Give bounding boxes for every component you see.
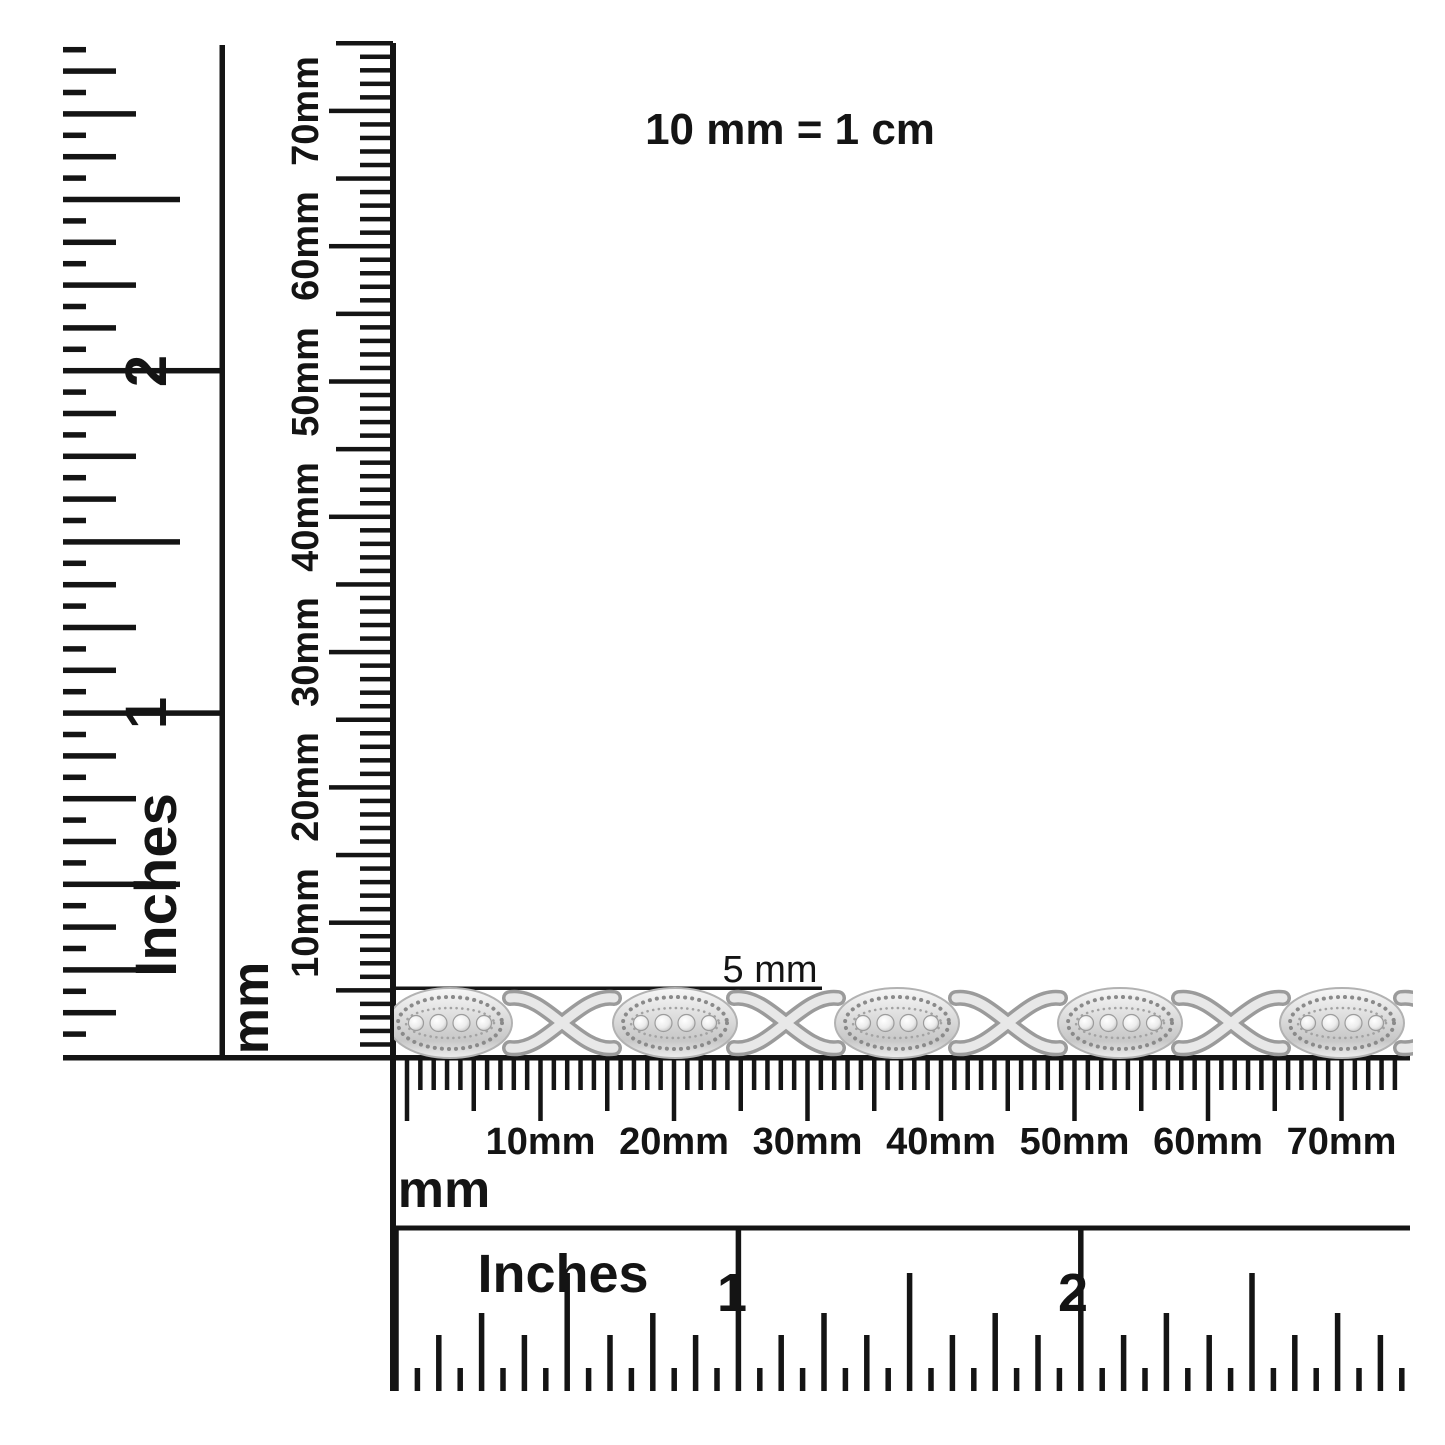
mm-tick-label-vertical-10mm: 10mm <box>287 868 325 978</box>
mm-tick-label-horizontal-60mm: 60mm <box>1153 1123 1263 1161</box>
mm-tick-label-horizontal-40mm: 40mm <box>886 1123 996 1161</box>
mm-tick-label-vertical-20mm: 20mm <box>287 732 325 842</box>
ruler-and-bracelet-graphic <box>0 0 1445 1445</box>
horizontal-inch-numeral-2: 2 <box>1058 1266 1088 1320</box>
vertical-inch-numeral-1: 1 <box>118 697 176 729</box>
mm-tick-label-horizontal-30mm: 30mm <box>753 1123 863 1161</box>
horizontal-mm-unit-label: mm <box>398 1164 490 1216</box>
horizontal-inch-numeral-1: 1 <box>717 1266 747 1320</box>
mm-tick-label-vertical-50mm: 50mm <box>287 327 325 437</box>
mm-tick-label-vertical-40mm: 40mm <box>287 462 325 572</box>
ruler-ticks-and-lines <box>63 41 1410 1391</box>
scale-note: 10 mm = 1 cm <box>645 108 935 152</box>
mm-tick-label-horizontal-20mm: 20mm <box>619 1123 729 1161</box>
mm-tick-label-horizontal-70mm: 70mm <box>1287 1123 1397 1161</box>
mm-tick-label-horizontal-10mm: 10mm <box>486 1123 596 1161</box>
bracelet-measurement-diagram: 10 mm = 1 cm 5 mm 2 1 Inches mm mm Inche… <box>0 0 1445 1445</box>
mm-tick-label-horizontal-50mm: 50mm <box>1020 1123 1130 1161</box>
bracelet-width-label: 5 mm <box>723 951 818 989</box>
horizontal-inch-unit-label: Inches <box>477 1247 648 1301</box>
mm-tick-label-vertical-70mm: 70mm <box>287 56 325 166</box>
vertical-inch-unit-label: Inches <box>128 793 186 977</box>
vertical-inch-numeral-2: 2 <box>118 355 176 387</box>
vertical-mm-unit-label: mm <box>225 962 277 1054</box>
mm-tick-label-vertical-30mm: 30mm <box>287 597 325 707</box>
mm-tick-label-vertical-60mm: 60mm <box>287 191 325 301</box>
bracelet-photo <box>388 988 1445 1058</box>
